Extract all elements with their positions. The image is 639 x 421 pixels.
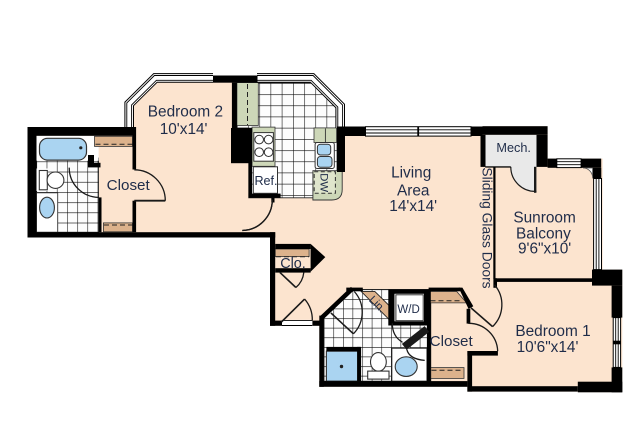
svg-text:W/D: W/D — [397, 304, 419, 316]
svg-text:Mech.: Mech. — [496, 141, 531, 155]
svg-text:9'6"x10': 9'6"x10' — [518, 241, 571, 258]
svg-text:Sunroom: Sunroom — [513, 209, 575, 226]
svg-text:14'x14': 14'x14' — [389, 198, 437, 215]
svg-text:Ref.: Ref. — [254, 174, 277, 188]
svg-text:Area: Area — [397, 182, 430, 199]
svg-text:DW: DW — [318, 173, 330, 192]
svg-text:Bedroom 1: Bedroom 1 — [515, 323, 590, 340]
svg-text:10'x14': 10'x14' — [160, 121, 208, 138]
svg-text:Clo.: Clo. — [280, 256, 306, 272]
svg-text:Bedroom 2: Bedroom 2 — [148, 104, 223, 121]
svg-text:Living: Living — [391, 165, 431, 182]
svg-text:Closet: Closet — [430, 333, 474, 350]
svg-text:Closet: Closet — [107, 177, 151, 194]
svg-text:10'6"x14': 10'6"x14' — [517, 339, 579, 356]
svg-text:Sliding Glass Doors: Sliding Glass Doors — [479, 167, 494, 288]
